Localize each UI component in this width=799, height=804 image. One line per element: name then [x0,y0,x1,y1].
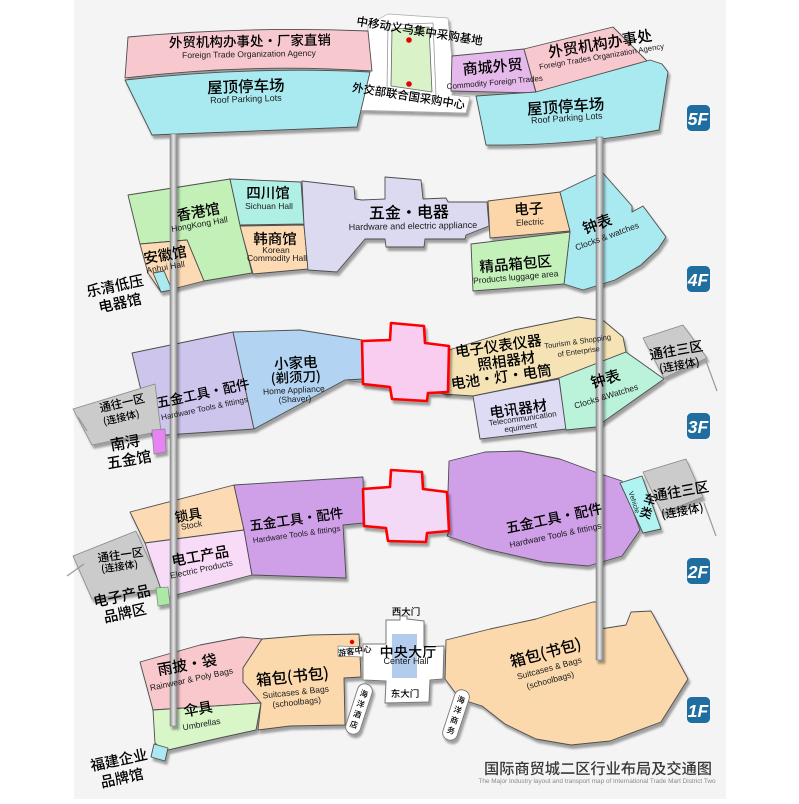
svg-text:4F: 4F [687,270,710,290]
svg-text:5F: 5F [688,109,710,129]
svg-text:Center Hall: Center Hall [383,656,428,666]
svg-text:(Shaver): (Shaver) [278,393,311,405]
svg-text:1F: 1F [688,701,710,721]
svg-text:Electric: Electric [516,216,545,227]
svg-text:Sichuan Hall: Sichuan Hall [245,201,293,211]
svg-text:2F: 2F [687,562,710,582]
svg-text:The Major Industry layout and: The Major Industry layout and transport … [478,778,716,785]
svg-text:Commodity Hall: Commodity Hall [247,253,307,263]
svg-text:3F: 3F [688,417,710,437]
